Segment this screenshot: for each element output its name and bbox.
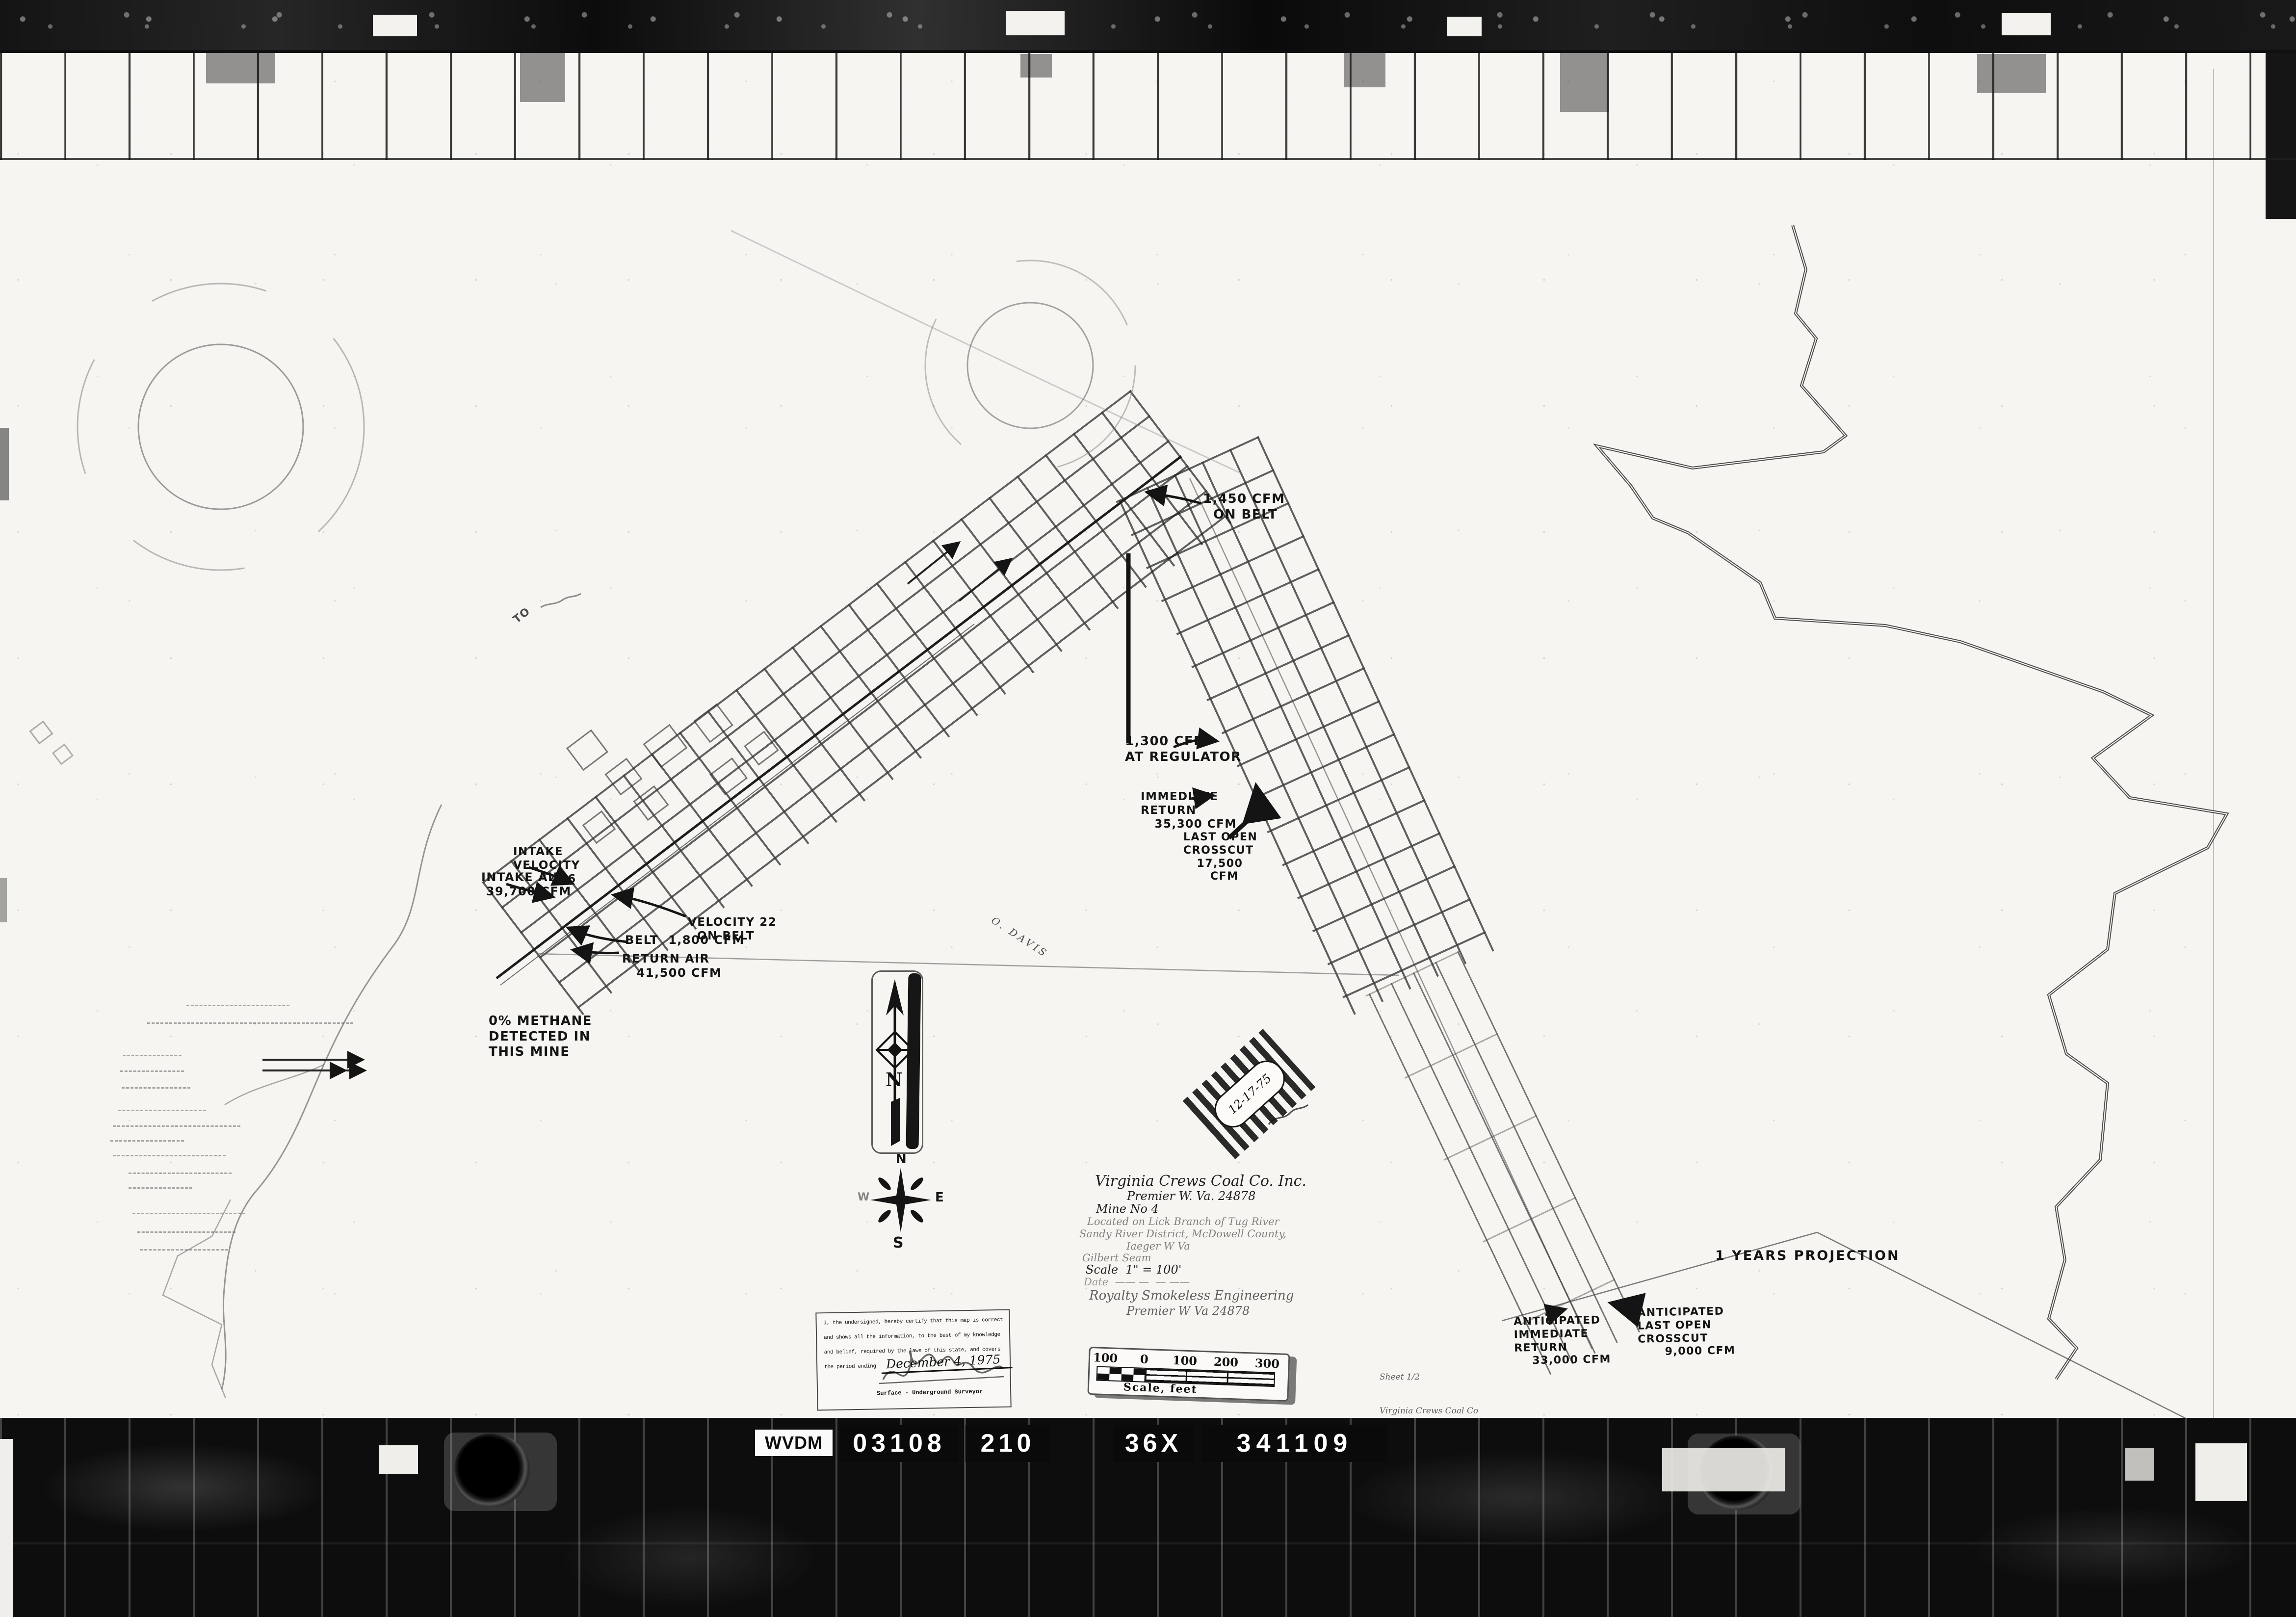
scale-tick: 200 bbox=[1213, 1355, 1238, 1370]
illegible-note-line bbox=[137, 1231, 235, 1233]
scan-edge-artifact bbox=[0, 878, 7, 922]
date-stamp: 12-17-75 bbox=[1183, 1029, 1316, 1159]
film-gap bbox=[373, 15, 417, 36]
stream-branch bbox=[225, 1065, 324, 1105]
film-white-box bbox=[2195, 1443, 2247, 1501]
annotation-belt: BELT 1,800 CFM bbox=[625, 933, 745, 947]
illegible-note-line bbox=[118, 1110, 206, 1111]
film-gap bbox=[2002, 13, 2051, 35]
illegible-note-line bbox=[147, 1022, 353, 1024]
portal-label-squiggle bbox=[541, 594, 581, 607]
film-white-box bbox=[379, 1445, 418, 1474]
title-engineer: Royalty Smokeless Engineering bbox=[1089, 1288, 1294, 1303]
survey-circle bbox=[967, 303, 1093, 428]
title-town: Iaeger W Va bbox=[1126, 1240, 1190, 1252]
title-date: Date —— — — —— bbox=[1084, 1276, 1190, 1288]
illegible-note-line bbox=[110, 1140, 184, 1142]
scale-bar-checker bbox=[1096, 1366, 1147, 1382]
compass-e: E bbox=[935, 1190, 944, 1205]
film-gap bbox=[1447, 17, 1482, 36]
illegible-note-line bbox=[113, 1125, 240, 1127]
annotation-belt-top: 1,450 CFM ON BELT bbox=[1203, 492, 1285, 522]
annotation-immediate-return: IMMEDIATE RETURN 35,300 CFM bbox=[1141, 790, 1237, 831]
illegible-note-line bbox=[129, 1187, 192, 1189]
scale-caption: Scale, feet bbox=[1123, 1381, 1198, 1396]
film-frame-edge bbox=[2213, 69, 2214, 1418]
illegible-note-line bbox=[113, 1155, 226, 1156]
film-white-box bbox=[1662, 1448, 1785, 1491]
id-plate-document-number: 341109 bbox=[1202, 1425, 1387, 1462]
title-seam: Gilbert Seam bbox=[1082, 1252, 1151, 1264]
property-boundary-core bbox=[1597, 225, 2227, 1379]
scale-tick: 100 bbox=[1172, 1353, 1197, 1368]
scan-edge-artifact bbox=[0, 428, 9, 500]
id-plate-size-code: 36X bbox=[1113, 1425, 1194, 1462]
sheet-note-line: Virginia Crews Coal Co bbox=[1380, 1406, 1478, 1417]
illegible-note-line bbox=[129, 1173, 232, 1174]
id-plate-sequence: 210 bbox=[965, 1425, 1050, 1462]
north-arrow-plaque-shadow bbox=[906, 973, 921, 1149]
film-white-box bbox=[2125, 1448, 2154, 1481]
title-address: Premier W. Va. 24878 bbox=[1127, 1189, 1255, 1203]
sheet-note-line: Sheet 1/2 bbox=[1380, 1372, 1478, 1383]
id-plate-mine-number: 03108 bbox=[840, 1425, 959, 1462]
film-smudge bbox=[520, 53, 565, 102]
film-gap bbox=[1006, 11, 1065, 35]
property-owner-label: O. DAVIS bbox=[989, 914, 1050, 960]
illegible-note-line bbox=[120, 1070, 184, 1072]
mine-workings-right-arm bbox=[1116, 436, 1494, 1016]
scale-bar: 100 0 100 200 300 Scale, feet bbox=[1087, 1347, 1290, 1402]
film-strip-top-band bbox=[0, 0, 2296, 53]
microfilm-id-strip: WVDM 03108 210 36X 341109 bbox=[755, 1425, 1387, 1462]
pillar-square bbox=[29, 721, 53, 745]
scale-tick: 100 bbox=[1093, 1350, 1118, 1365]
film-smudge bbox=[1020, 54, 1052, 78]
film-strip-top bbox=[0, 0, 2296, 160]
annotation-intake-air: INTAKE AIR 39,700 CFM bbox=[481, 870, 572, 899]
illegible-note-line bbox=[122, 1087, 190, 1089]
annotation-anticipated-return: ANTICIPATED IMMEDIATE RETURN 33,000 CFM bbox=[1513, 1314, 1611, 1368]
annotation-projection: 1 YEARS PROJECTION bbox=[1715, 1248, 1900, 1264]
boundary-zigzag bbox=[163, 1200, 231, 1398]
film-white-edge bbox=[0, 1439, 13, 1617]
annotation-return-air: RETURN AIR 41,500 CFM bbox=[622, 952, 722, 981]
illegible-note-line bbox=[123, 1055, 182, 1056]
scale-bar-rule bbox=[1096, 1366, 1274, 1385]
film-smudge bbox=[1977, 54, 2046, 93]
compass-rose bbox=[870, 1168, 931, 1232]
pillar-square bbox=[52, 743, 74, 765]
film-smudge bbox=[1344, 52, 1385, 87]
title-location: Located on Lick Branch of Tug River bbox=[1087, 1216, 1279, 1227]
title-district: Sandy River District, McDowell County, bbox=[1079, 1228, 1286, 1240]
title-scale: Scale 1" = 100' bbox=[1086, 1263, 1181, 1277]
film-smudge bbox=[1560, 53, 1609, 112]
illegible-note-line bbox=[186, 1005, 289, 1006]
compass-w: W bbox=[858, 1191, 869, 1203]
illegible-note-line bbox=[132, 1213, 245, 1214]
compass-n: N bbox=[896, 1152, 907, 1167]
property-boundary bbox=[1597, 225, 2227, 1379]
certification-line-2: and shows all the information, to the be… bbox=[824, 1332, 1000, 1341]
annotation-last-open-crosscut: LAST OPEN CROSSCUT 17,500 CFM bbox=[1183, 831, 1257, 884]
north-arrow-letter: N bbox=[886, 1069, 903, 1091]
survey-circle bbox=[78, 284, 364, 570]
annotation-regulator: 1,300 CFM AT REGULATOR bbox=[1125, 734, 1242, 765]
stream-line bbox=[222, 805, 442, 1389]
title-mine: Mine No 4 bbox=[1096, 1202, 1159, 1216]
id-agency-label: WVDM bbox=[755, 1430, 833, 1456]
mine-workings-left-arm bbox=[482, 390, 1231, 1015]
mine-workings-projection-arm bbox=[1365, 951, 1640, 1377]
illegible-note-line bbox=[140, 1249, 228, 1251]
annotation-anticipated-crosscut: ANTICIPATED LAST OPEN CROSSCUT 9,000 CFM bbox=[1637, 1305, 1736, 1359]
scale-tick: 0 bbox=[1140, 1352, 1149, 1367]
certification-period-date: December 4, 1975 bbox=[881, 1352, 1013, 1374]
annotation-methane: 0% METHANE DETECTED IN THIS MINE bbox=[489, 1014, 592, 1060]
survey-circle bbox=[138, 344, 303, 509]
pillar-square bbox=[566, 730, 608, 771]
annotation-portal-to: TO bbox=[511, 605, 533, 627]
certification-box: I, the undersigned, hereby certify that … bbox=[815, 1309, 1011, 1411]
compass-s: S bbox=[893, 1234, 904, 1252]
film-spool-left bbox=[454, 1434, 530, 1507]
scanned-mine-map: 1,450 CFM ON BELT 1,300 CFM AT REGULATOR… bbox=[0, 0, 2296, 1617]
title-company: Virginia Crews Coal Co. Inc. bbox=[1095, 1173, 1306, 1190]
title-engineer-address: Premier W Va 24878 bbox=[1126, 1304, 1250, 1318]
film-smudge bbox=[206, 53, 275, 83]
scale-tick: 300 bbox=[1254, 1356, 1279, 1371]
certification-period-label: the period ending bbox=[824, 1363, 876, 1370]
certification-line-1: I, the undersigned, hereby certify that … bbox=[824, 1317, 1003, 1326]
surveyor-title: Surface - Underground Surveyor bbox=[877, 1388, 983, 1397]
